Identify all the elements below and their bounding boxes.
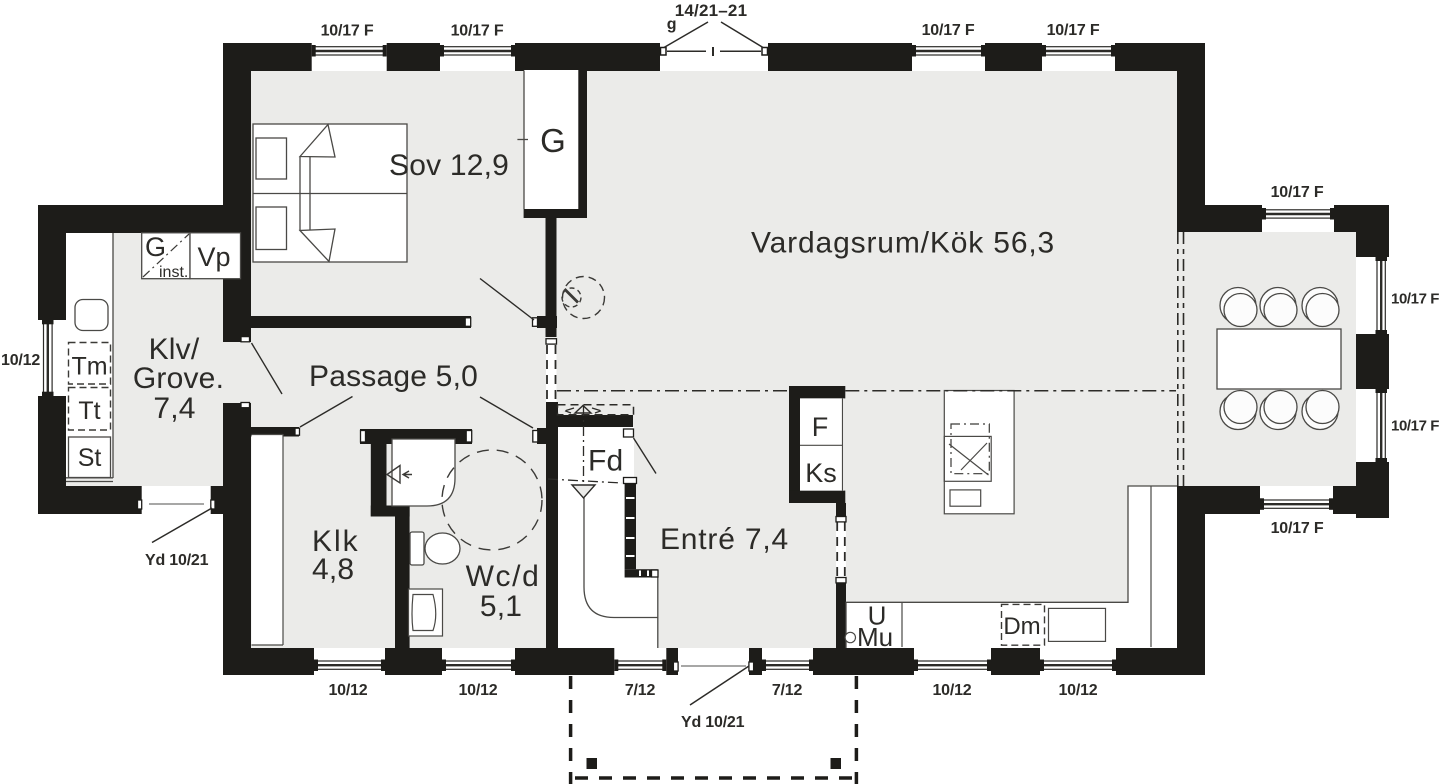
svg-text:5,1: 5,1 (480, 590, 522, 623)
svg-text:Wc/d: Wc/d (466, 560, 541, 593)
svg-text:10/12: 10/12 (1, 352, 40, 369)
svg-text:10/12: 10/12 (1058, 682, 1097, 699)
svg-text:Fd: Fd (588, 445, 623, 478)
svg-text:Grove.: Grove. (133, 362, 224, 395)
svg-text:7/12: 7/12 (772, 682, 803, 699)
svg-text:Dm: Dm (1003, 613, 1040, 640)
svg-text:Ks: Ks (805, 458, 837, 488)
svg-text:10/17 F: 10/17 F (1391, 291, 1439, 308)
svg-text:7/12: 7/12 (625, 682, 656, 699)
svg-text:St: St (78, 444, 102, 472)
svg-text:4,8: 4,8 (312, 553, 354, 586)
svg-text:10/12: 10/12 (458, 682, 497, 699)
svg-text:Tm: Tm (71, 353, 107, 381)
svg-text:7,4: 7,4 (153, 392, 195, 425)
svg-text:14/21–21: 14/21–21 (675, 1, 748, 20)
svg-text:G: G (145, 232, 166, 262)
svg-text:Yd 10/21: Yd 10/21 (681, 714, 745, 731)
svg-text:10/17 F: 10/17 F (1391, 418, 1439, 435)
svg-text:10/12: 10/12 (328, 682, 367, 699)
svg-text:Vardagsrum/Kök 56,3: Vardagsrum/Kök 56,3 (751, 227, 1055, 260)
svg-text:Entré 7,4: Entré 7,4 (660, 523, 789, 556)
svg-text:inst.: inst. (159, 264, 188, 281)
svg-text:10/12: 10/12 (932, 682, 971, 699)
svg-text:F: F (812, 412, 829, 442)
svg-text:Vp: Vp (197, 242, 230, 272)
svg-text:10/17 F: 10/17 F (1271, 520, 1324, 537)
svg-text:Yd 10/21: Yd 10/21 (145, 552, 209, 569)
svg-text:10/17 F: 10/17 F (321, 23, 374, 40)
svg-text:Tt: Tt (78, 397, 100, 425)
svg-text:G: G (540, 122, 566, 159)
svg-text:g: g (667, 16, 677, 33)
svg-text:10/17 F: 10/17 F (451, 23, 504, 40)
svg-text:10/17 F: 10/17 F (1047, 22, 1100, 39)
svg-text:Mu: Mu (857, 622, 893, 652)
svg-text:Sov 12,9: Sov 12,9 (389, 149, 509, 182)
svg-text:10/17 F: 10/17 F (922, 22, 975, 39)
svg-text:Passage 5,0: Passage 5,0 (309, 360, 478, 393)
svg-text:10/17 F: 10/17 F (1271, 184, 1324, 201)
